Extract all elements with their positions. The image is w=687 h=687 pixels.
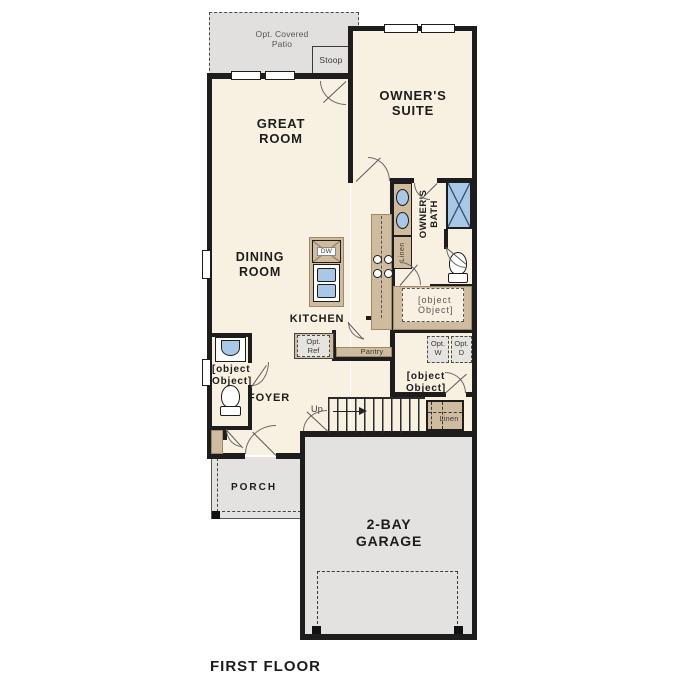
suite-window-2 (421, 24, 455, 33)
pantry-label: Pantry (352, 348, 392, 357)
garage-door-jamb-right (454, 626, 463, 634)
opt-refrigerator-box: Opt. Ref (297, 335, 330, 357)
staircase (328, 397, 425, 433)
stairs-direction-arrowhead (359, 407, 367, 415)
floor-plan: Opt. Covered Patio Stoop PORCH 2-BAY GAR… (0, 0, 687, 687)
opt-ref-line2: Ref (308, 346, 320, 355)
vanity-sink-1 (396, 189, 409, 206)
stove-burner-2 (384, 255, 393, 264)
garage-door-outline (317, 571, 458, 634)
foyer-bottom-wall-b (276, 453, 304, 459)
opt-w-line2: W (434, 348, 441, 357)
opt-washer-box: Opt. W (427, 336, 449, 363)
garage-label-line1: 2-BAY (367, 516, 412, 532)
owners-suite-label-line2: SUITE (392, 103, 434, 118)
garage-left-wall (300, 431, 305, 640)
pwdr-label: [object Object] (212, 364, 250, 388)
dining-room-label-line1: DINING (236, 250, 285, 264)
shower (446, 181, 472, 229)
foyer-closet-wall (211, 430, 223, 454)
great-room-label-line2: ROOM (259, 131, 303, 146)
island-sink-basin-1 (317, 268, 336, 282)
dishwasher-label: DW (317, 247, 336, 256)
pwdr-toilet-bowl (221, 385, 240, 408)
pwdr-toilet-tank (220, 406, 241, 416)
great-room-label-line1: GREAT (257, 116, 306, 131)
stoop-label: Stoop (313, 56, 349, 66)
wic-label: [object Object] (418, 295, 448, 316)
hall-linen-label: Linen (434, 415, 464, 424)
pwdr-right-wall-a (248, 333, 252, 363)
island-sink-basin-2 (317, 284, 336, 298)
garage-bottom-wall (300, 634, 477, 640)
patio-label-line2: Patio (272, 39, 292, 49)
pwdr-window (202, 359, 211, 386)
foyer-label: FOYER (244, 392, 294, 405)
plan-title: FIRST FLOOR (210, 658, 350, 676)
dining-room-label-line2: ROOM (239, 265, 281, 279)
shower-x-pattern (448, 183, 470, 227)
suite-left-wall (348, 26, 353, 183)
garage-label: 2-BAY GARAGE (329, 516, 449, 549)
porch-label: PORCH (224, 482, 284, 494)
opt-d-line2: D (459, 348, 464, 357)
garage-door-jamb-left (312, 626, 321, 634)
great-room-window-2 (265, 71, 295, 80)
vanity-sink-2 (396, 212, 409, 229)
porch-post (212, 511, 220, 519)
stove-burner-1 (373, 255, 382, 264)
suite-window-1 (384, 24, 418, 33)
laundry-bottom-wall-b (466, 392, 472, 397)
hall-linen-shelf-dash (428, 412, 462, 413)
kitchen-label: KITCHEN (286, 313, 348, 326)
owners-suite-label-line1: OWNER'S (379, 88, 446, 103)
dining-room-label: DINING ROOM (210, 250, 310, 280)
stairs-direction-line (333, 411, 360, 412)
garage-label-line2: GARAGE (356, 533, 422, 549)
owners-suite-label: OWNER'S SUITE (363, 88, 463, 119)
pwdr-sink-bowl (221, 340, 240, 356)
stove-burner-4 (384, 269, 393, 278)
opt-dryer-box: Opt. D (451, 336, 472, 363)
great-room-window-1 (231, 71, 261, 80)
house-right-wall (472, 26, 477, 640)
bath-toilet-tank (448, 273, 468, 283)
owners-bath-label-line2: BATH (429, 200, 440, 228)
kitchen-counter-centerline (381, 216, 382, 318)
patio-label-line1: Opt. Covered (256, 29, 309, 39)
great-room-label: GREAT ROOM (231, 116, 331, 147)
stove-burner-3 (373, 269, 382, 278)
